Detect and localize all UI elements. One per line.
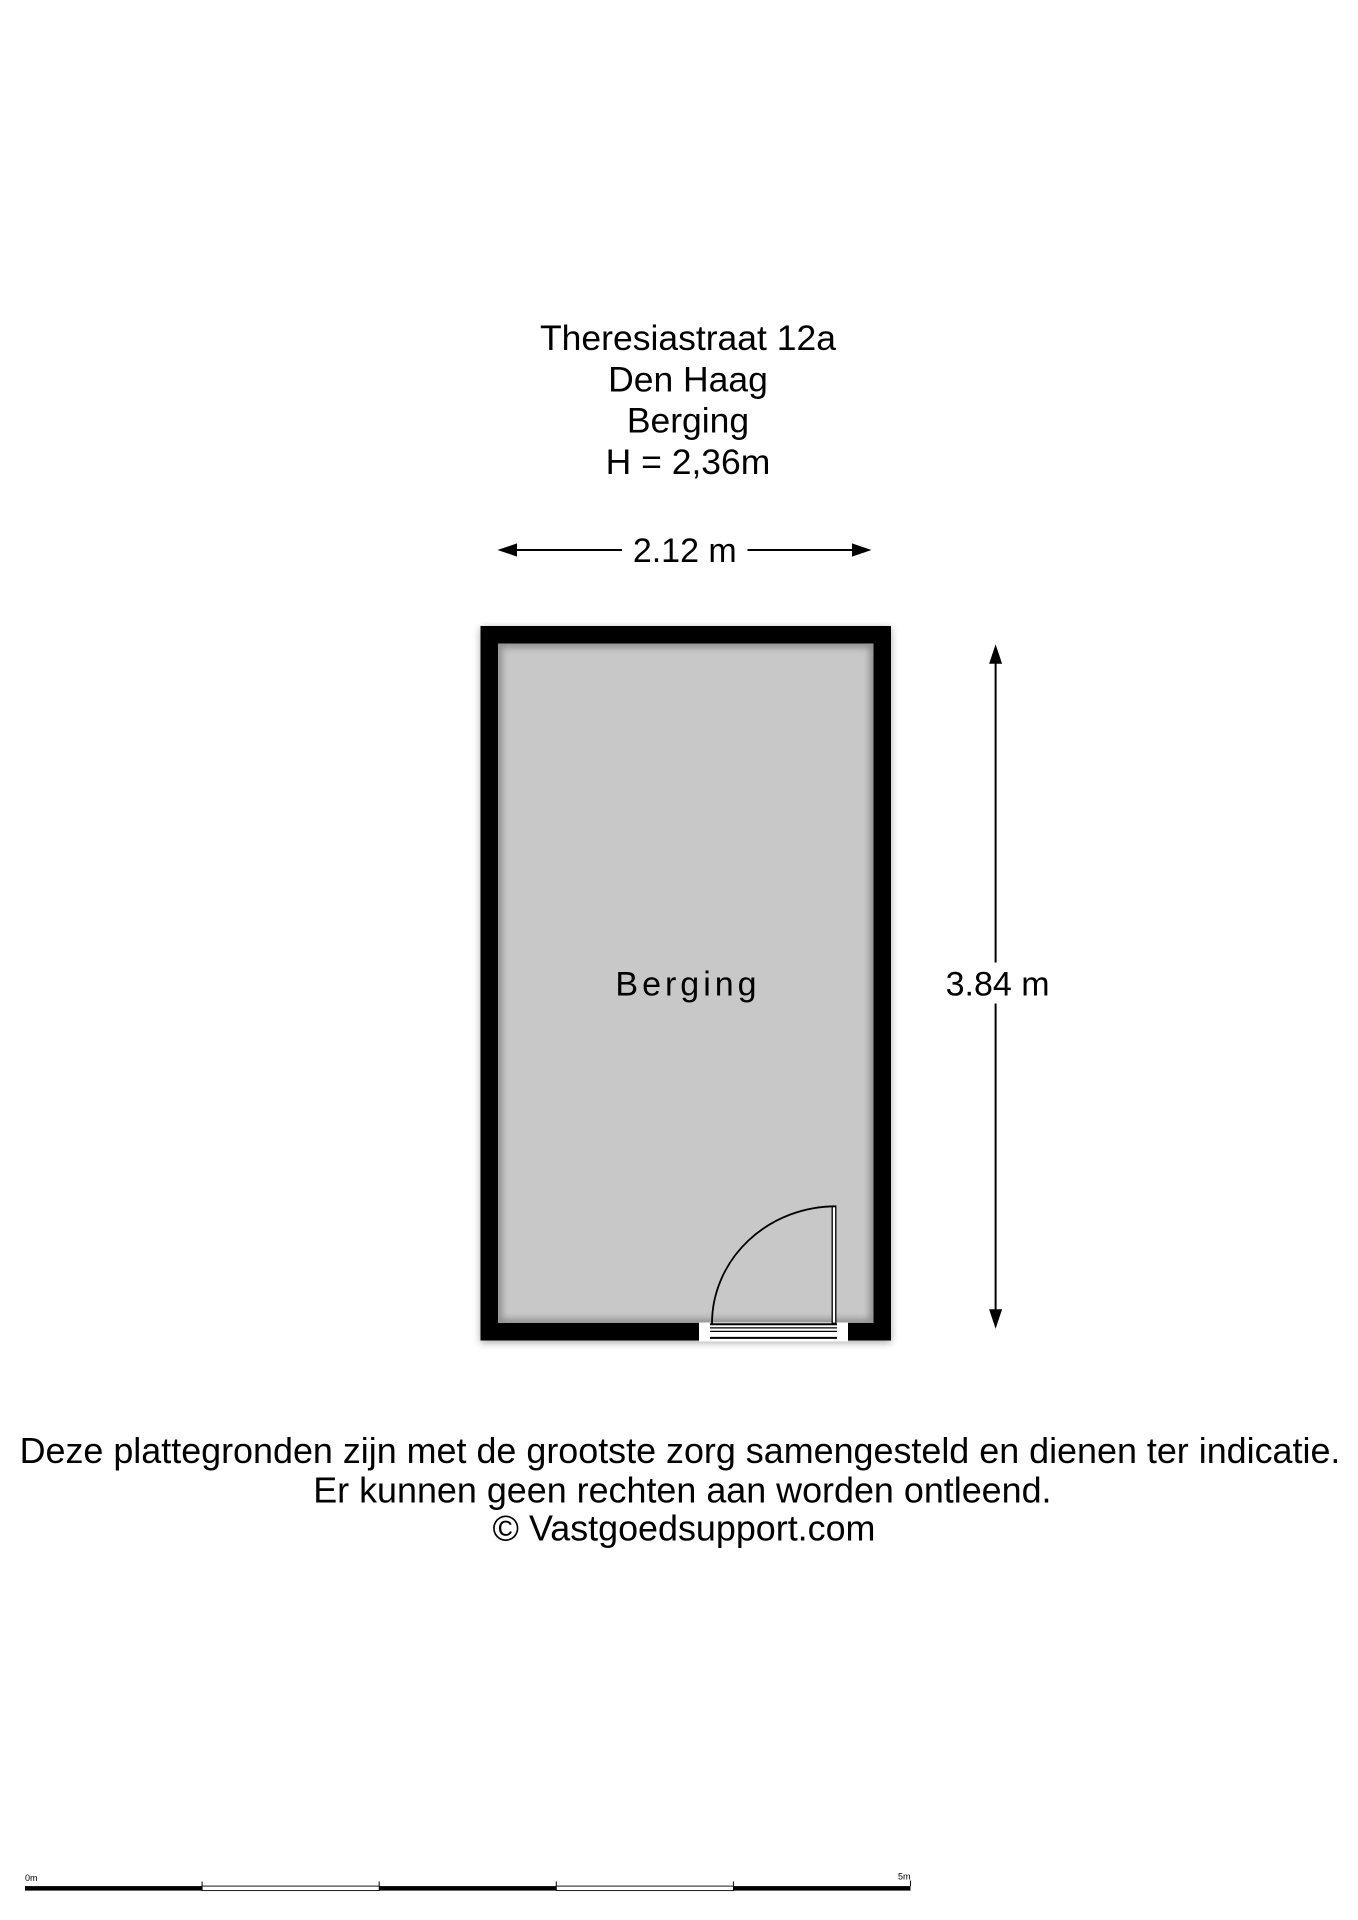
svg-text:Er kunnen geen rechten aan wor: Er kunnen geen rechten aan worden ontlee… [313, 1471, 1051, 1511]
svg-text:5m: 5m [898, 1872, 911, 1882]
svg-text:Den Haag: Den Haag [608, 359, 768, 399]
svg-text:Deze plattegronden zijn met de: Deze plattegronden zijn met de grootste … [20, 1431, 1341, 1471]
svg-text:H = 2,36m: H = 2,36m [606, 442, 771, 482]
svg-text:3.84 m: 3.84 m [946, 966, 1050, 1004]
svg-text:0m: 0m [25, 1873, 38, 1883]
svg-text:© Vastgoedsupport.com: © Vastgoedsupport.com [493, 1508, 876, 1548]
svg-text:Berging: Berging [615, 965, 760, 1003]
svg-text:Berging: Berging [627, 401, 749, 441]
svg-text:Theresiastraat 12a: Theresiastraat 12a [540, 318, 836, 358]
svg-text:2.12 m: 2.12 m [633, 532, 737, 570]
